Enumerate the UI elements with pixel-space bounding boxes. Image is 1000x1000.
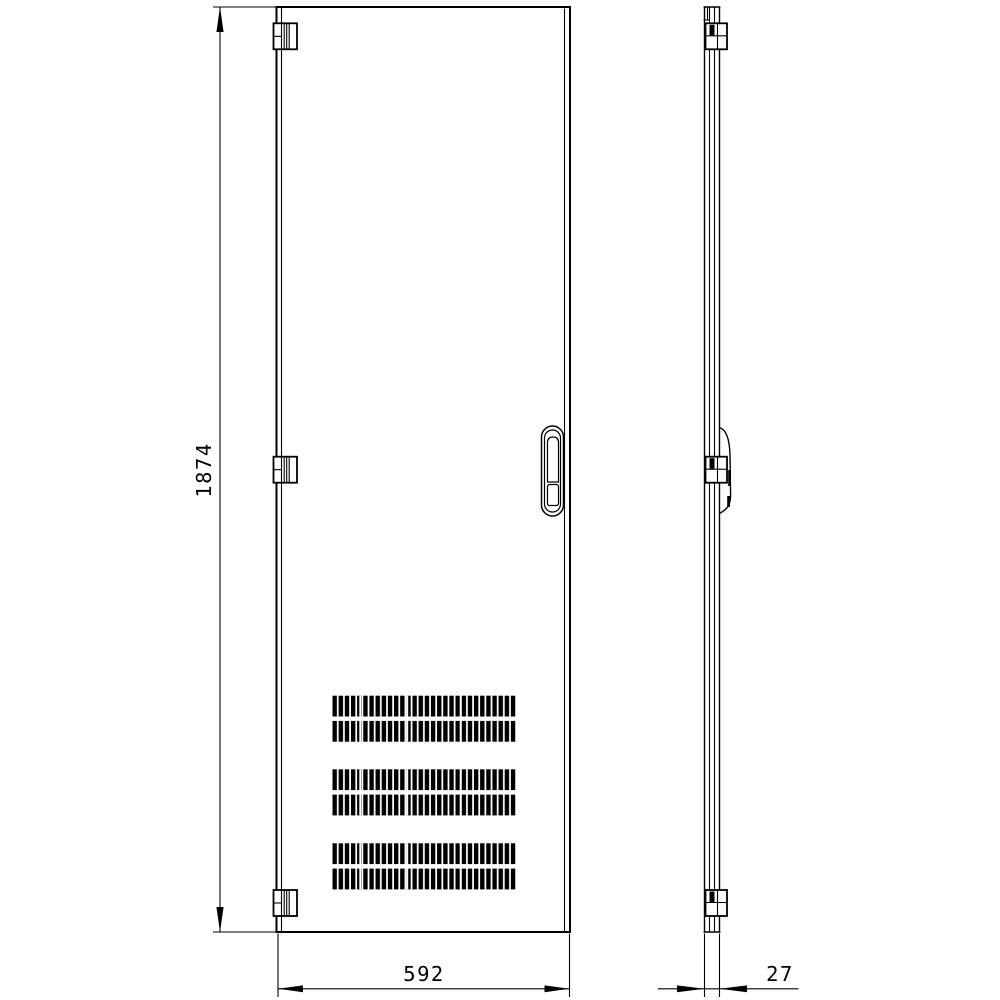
- front-view: [274, 7, 571, 932]
- arrow-left: [278, 985, 303, 992]
- dim-text-width: 592: [403, 962, 445, 986]
- handle-grip: [548, 437, 559, 482]
- hinge-front-bottom: [274, 890, 298, 916]
- door-outline: [277, 7, 571, 932]
- dim-text-depth: 27: [766, 962, 794, 986]
- hinge-side-middle: [706, 457, 728, 483]
- arrow-inward-left: [720, 985, 748, 992]
- hinge-side-bottom: [706, 890, 728, 916]
- handle-lock: [548, 485, 559, 506]
- hinge-front-middle: [274, 457, 298, 483]
- side-view: [704, 7, 731, 932]
- hinge-side-top: [706, 23, 728, 49]
- dimension-width: 592: [278, 934, 570, 998]
- arrow-right: [545, 985, 570, 992]
- dim-text-height: 1874: [192, 442, 216, 497]
- hinge-front-top: [274, 23, 298, 49]
- arrow-inward-right: [677, 985, 705, 992]
- arrow-down: [216, 907, 223, 932]
- dimension-height: 1874: [192, 7, 277, 932]
- technical-drawing-canvas: 1874 592 27: [0, 0, 1000, 1000]
- arrow-up: [216, 7, 223, 32]
- dimension-depth: 27: [658, 934, 799, 998]
- door-handle: [542, 426, 564, 516]
